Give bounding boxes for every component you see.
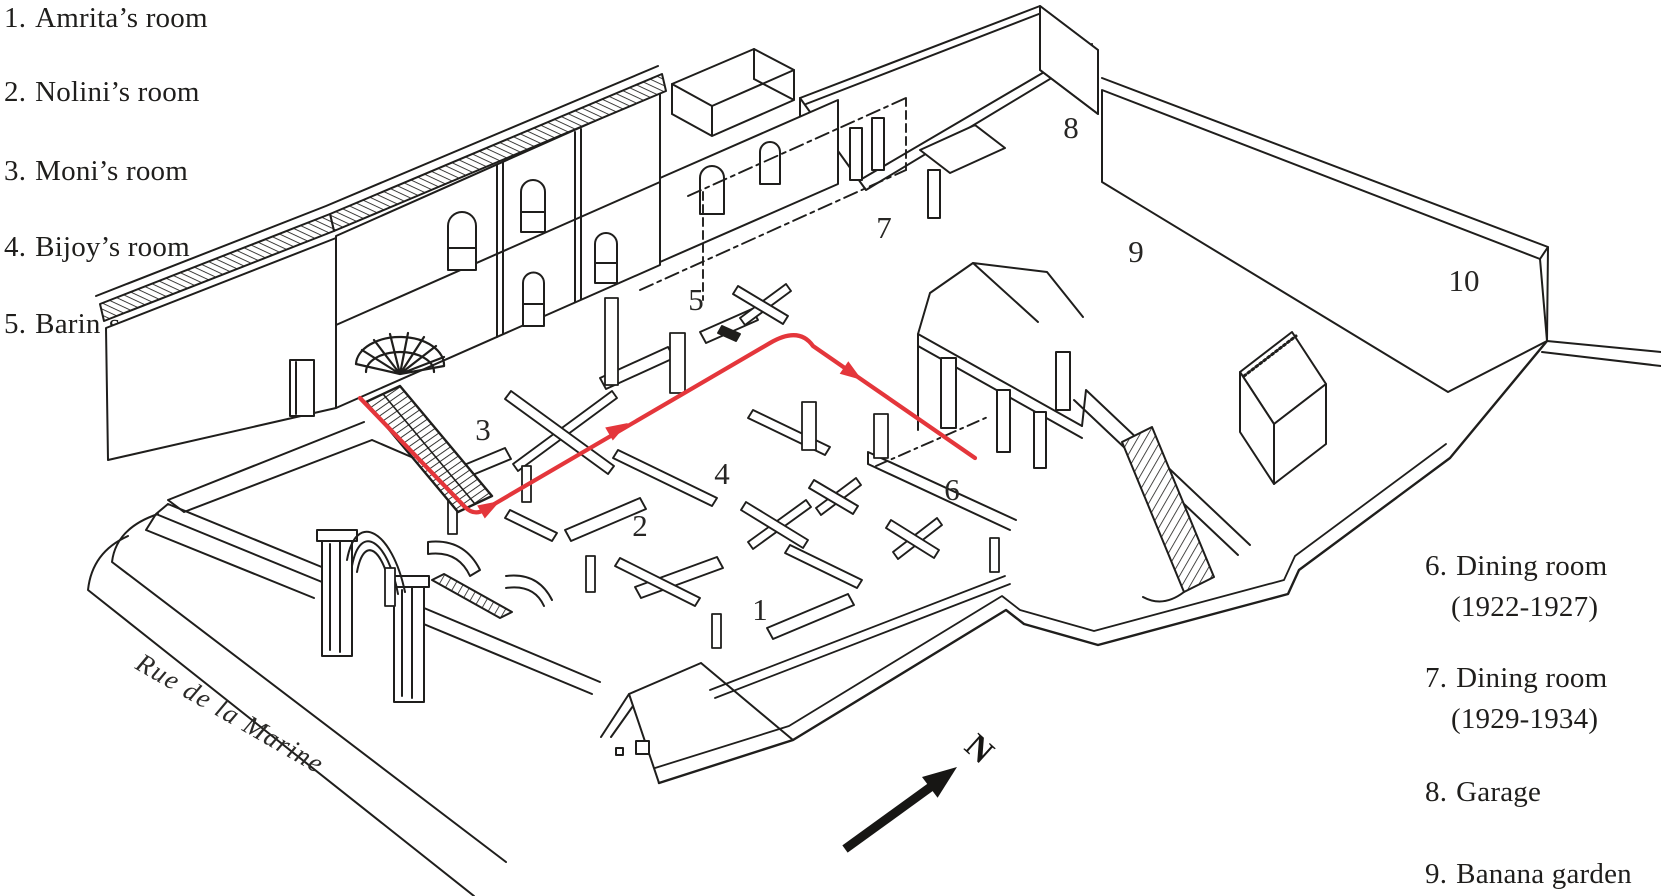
plan-number-5: 5 (688, 282, 704, 317)
route-arrowhead-3 (840, 361, 862, 380)
plan-number-8: 8 (1063, 110, 1079, 145)
plan-number-2: 2 (632, 508, 648, 543)
plan-number-9: 9 (1128, 234, 1144, 269)
plan-number-6: 6 (944, 472, 960, 507)
northeast-boundary-wall (1102, 78, 1661, 392)
plan-number-4: 4 (714, 456, 730, 491)
interior-walls (452, 309, 862, 639)
terrace-block (1240, 332, 1326, 484)
main-house (96, 49, 838, 460)
rooftop-box (672, 49, 794, 136)
street-label: Rue de la Marine (130, 647, 330, 780)
annexe-house (868, 263, 1083, 530)
plan-number-10: 10 (1449, 263, 1480, 298)
route-arrowhead-1 (477, 501, 500, 519)
window-lower-right (595, 233, 617, 283)
annexe-roof (918, 263, 1083, 334)
annexe-front-wall (868, 452, 1016, 530)
plan-number-1: 1 (752, 592, 768, 627)
right-staircase (1074, 390, 1250, 601)
north-label: N (958, 727, 1001, 771)
north-arrow-icon (845, 767, 957, 849)
window-upper-mid (521, 180, 545, 232)
window-lower-left (523, 273, 544, 327)
axonometric-drawing: 1 2 3 4 5 6 7 8 9 10 Rue de la Marine N (0, 0, 1661, 896)
single-storey-wall (660, 100, 838, 262)
window-single-2 (760, 142, 780, 184)
figure-axonometric-plan: 1.Amrita’s room 2.Nolini’s room 3.Moni’s… (0, 0, 1661, 896)
window-upper-left (448, 212, 476, 270)
plan-number-3: 3 (475, 412, 491, 447)
gate-inner-curved-walls (428, 542, 552, 618)
plan-number-7: 7 (876, 210, 892, 245)
southeast-boundary-wall (655, 341, 1547, 783)
compound-west-walls (146, 422, 600, 694)
entrance-gate (317, 530, 429, 702)
south-porch (601, 663, 793, 783)
